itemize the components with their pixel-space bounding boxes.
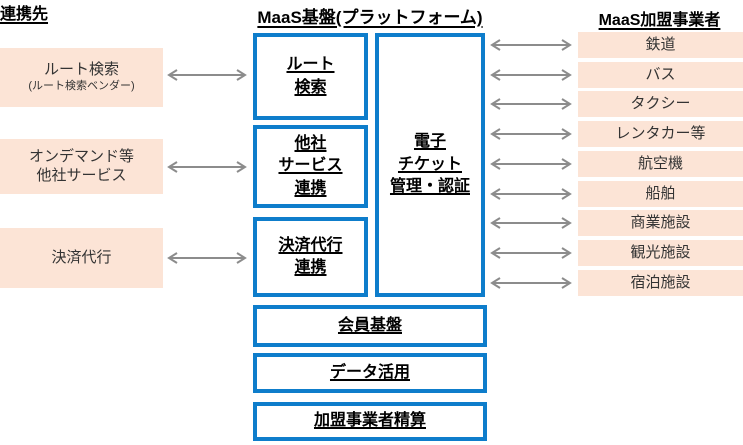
- partner-label: ルート検索: [44, 61, 119, 80]
- partner-box-payment-agency: 決済代行: [0, 228, 163, 288]
- foundation-member-settlement: 加盟事業者精算: [253, 402, 487, 441]
- foundation-label: 加盟事業者精算: [314, 410, 426, 432]
- double-arrow-member-tourist: [487, 246, 575, 260]
- member-box-railway: 鉄道: [578, 32, 743, 58]
- member-label: 航空機: [638, 155, 683, 174]
- member-box-bus: バス: [578, 62, 743, 88]
- member-label: 商業施設: [630, 214, 690, 233]
- double-arrow-member-taxi: [487, 97, 575, 111]
- partner-label: 決済代行: [51, 249, 111, 268]
- double-arrow-member-ship: [487, 187, 575, 201]
- double-arrow-member-commercial: [487, 216, 575, 230]
- module-label: 決済代行 連携: [278, 235, 342, 280]
- partner-box-route-search-vendor: ルート検索 (ルート検索ベンダー): [0, 48, 163, 107]
- member-label: バス: [645, 66, 675, 85]
- double-arrow-member-railway: [487, 38, 575, 52]
- partner-box-on-demand-services: オンデマンド等 他社サービス: [0, 139, 163, 194]
- member-box-rental-car: レンタカー等: [578, 121, 743, 147]
- module-payment-agency-link: 決済代行 連携: [253, 217, 368, 297]
- member-box-tourist-facility: 観光施設: [578, 240, 743, 266]
- member-label: 船舶: [645, 185, 675, 204]
- member-label: タクシー: [630, 95, 690, 114]
- member-box-taxi: タクシー: [578, 91, 743, 117]
- member-box-ship: 船舶: [578, 181, 743, 207]
- module-label: ルート 検索: [286, 54, 334, 99]
- partner-sublabel: (ルート検索ベンダー): [28, 80, 134, 94]
- member-box-lodging-facility: 宿泊施設: [578, 270, 743, 296]
- member-label: 観光施設: [630, 244, 690, 263]
- module-e-ticket-management: 電子 チケット 管理・認証: [375, 33, 485, 297]
- module-label: 電子 チケット 管理・認証: [390, 131, 470, 198]
- foundation-data-utilization: データ活用: [253, 353, 487, 393]
- double-arrow-member-lodging: [487, 276, 575, 290]
- foundation-membership-base: 会員基盤: [253, 305, 487, 347]
- double-arrow-partner-on-demand: [164, 160, 250, 174]
- double-arrow-member-aircraft: [487, 157, 575, 171]
- member-label: レンタカー等: [615, 125, 705, 144]
- double-arrow-partner-route-search: [164, 68, 250, 82]
- double-arrow-partner-payment: [164, 251, 250, 265]
- double-arrow-member-rental-car: [487, 127, 575, 141]
- maas-architecture-diagram: 連携先 MaaS基盤(プラットフォーム) MaaS加盟事業者 ルート検索 (ルー…: [0, 0, 743, 445]
- module-label: 他社 サービス 連携: [278, 133, 342, 200]
- member-box-aircraft: 航空機: [578, 151, 743, 177]
- module-partner-service-link: 他社 サービス 連携: [253, 125, 368, 208]
- double-arrow-member-bus: [487, 68, 575, 82]
- platform-column-header: MaaS基盤(プラットフォーム): [233, 3, 507, 28]
- partners-column-header: 連携先: [0, 0, 48, 24]
- member-box-commercial-facility: 商業施設: [578, 210, 743, 236]
- members-column-header: MaaS加盟事業者: [578, 6, 741, 30]
- foundation-label: 会員基盤: [338, 315, 402, 337]
- foundation-label: データ活用: [330, 362, 410, 384]
- partner-label: オンデマンド等 他社サービス: [29, 148, 134, 186]
- member-label: 鉄道: [645, 36, 675, 55]
- module-route-search: ルート 検索: [253, 33, 368, 120]
- member-label: 宿泊施設: [630, 274, 690, 293]
